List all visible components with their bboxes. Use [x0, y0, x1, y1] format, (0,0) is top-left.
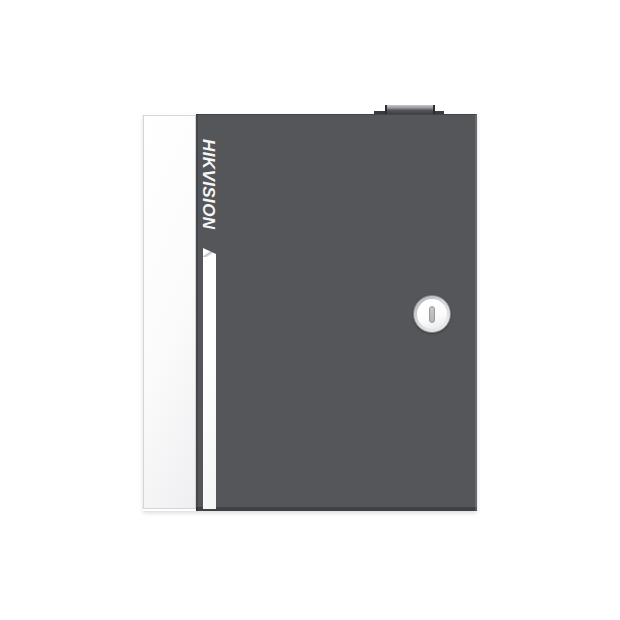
side-panel: [143, 115, 196, 509]
brand-logo: HIKVISION: [199, 139, 217, 230]
door-stripe: [203, 248, 216, 509]
door-panel: HIKVISION: [196, 114, 477, 511]
lock-face: [417, 299, 447, 329]
access-controller-enclosure: HIKVISION: [143, 114, 477, 511]
keyhole-slot: [429, 306, 435, 323]
door-lock: [413, 295, 451, 333]
scene: HIKVISION: [0, 0, 620, 620]
top-latch-cap: [385, 105, 435, 114]
